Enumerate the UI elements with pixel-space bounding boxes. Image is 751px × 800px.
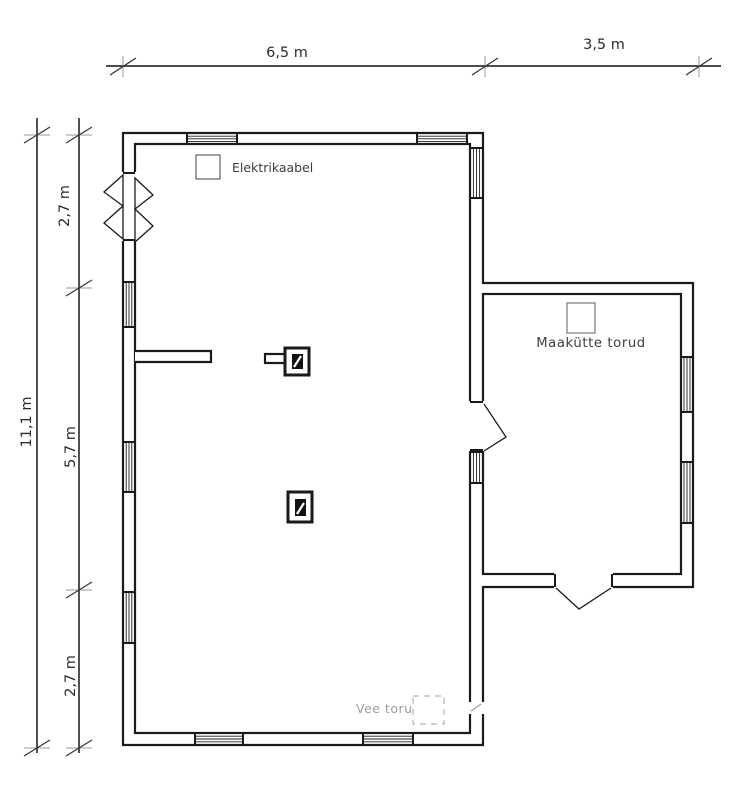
dimension-label-segment-bottom: 2,7 m	[63, 655, 79, 697]
chimney-symbol-upper	[285, 348, 309, 375]
floor-plan-drawing: 6,5 m 3,5 m 11,1 m	[0, 0, 751, 800]
dimension-label-segment-middle: 5,7 m	[63, 426, 79, 468]
building-walls	[123, 133, 693, 745]
dimension-label-segment-top: 2,7 m	[57, 185, 73, 227]
annex-exterior-door-swing	[556, 588, 611, 609]
vee-toru-label: Vee toru	[356, 701, 413, 716]
main-room-inner-outline	[135, 144, 470, 733]
chimney-wall-stub	[265, 354, 285, 363]
floor-plan-page: 6,5 m 3,5 m 11,1 m	[0, 0, 751, 800]
dimension-label-height-total: 11,1 m	[19, 396, 35, 447]
dimension-label-width-main: 6,5 m	[266, 45, 308, 61]
wall-erasure-gap	[468, 702, 485, 714]
maakutte-label: Maakütte torud	[536, 336, 646, 351]
elektrikaabel-label: Elektrikaabel	[232, 160, 313, 175]
dimension-line-left-total: 11,1 m	[19, 118, 50, 756]
chimney-symbol-lower	[288, 492, 312, 522]
dimension-label-width-annex: 3,5 m	[583, 37, 625, 53]
interior-partition-wall	[135, 351, 211, 362]
dimension-line-left-segments: 2,7 m 5,7 m 2,7 m	[57, 118, 92, 756]
dimension-line-top: 6,5 m 3,5 m	[106, 37, 721, 77]
